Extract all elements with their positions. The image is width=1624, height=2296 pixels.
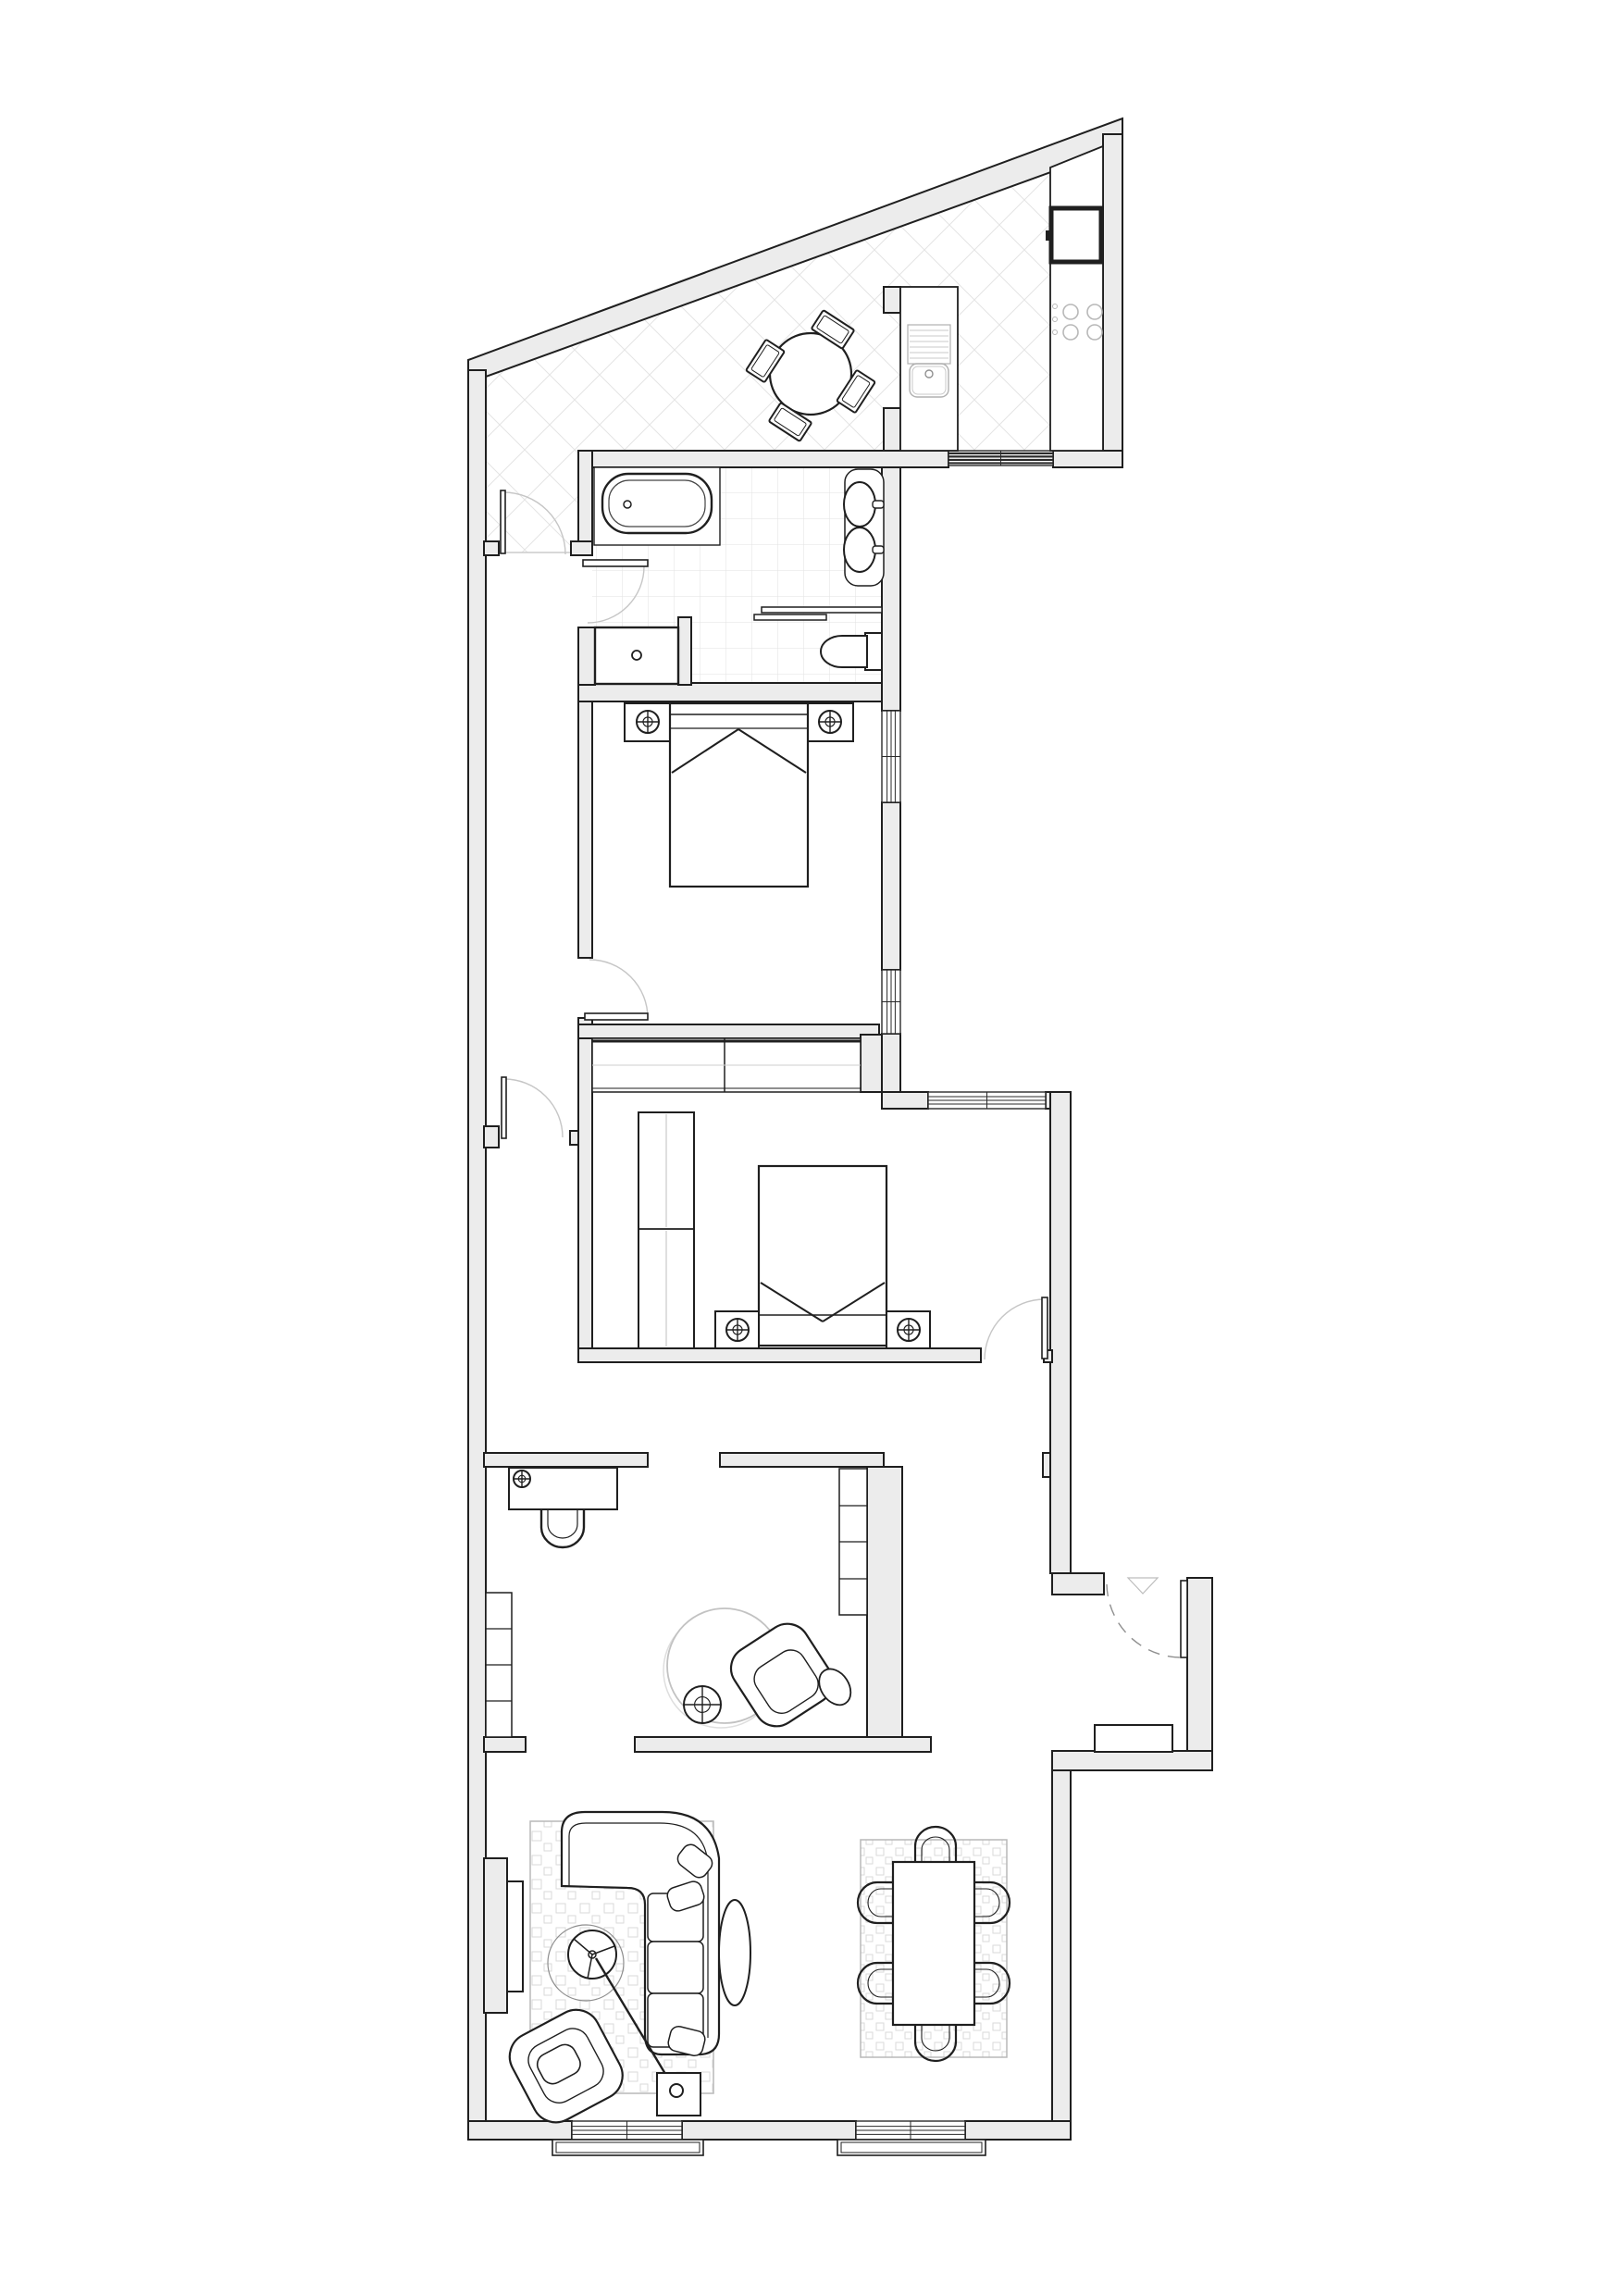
wall-kitchen-right (1103, 134, 1122, 467)
wall-east-2 (882, 802, 900, 970)
vanity-sink-1 (844, 482, 875, 527)
entry-direction-marker (1128, 1578, 1158, 1594)
wall-bath-west (578, 451, 592, 541)
floor-plan (0, 0, 1624, 2296)
study-floor-lamp (684, 1686, 721, 1723)
wall-bed2-north-a (882, 1092, 928, 1109)
wall-study-north-a (484, 1453, 648, 1467)
bed1 (670, 703, 808, 887)
wall-hall-pier (1043, 1453, 1050, 1477)
wall-bath-stub (678, 617, 691, 685)
towel-rail-2 (754, 614, 826, 620)
wall-washer-side (578, 627, 595, 685)
wall-entry-east (1187, 1578, 1212, 1770)
wall-bottom-a (468, 2121, 572, 2140)
tv-panel (507, 1881, 523, 1992)
arc-lamp-bulb (670, 2084, 683, 2097)
door-corridor (502, 1077, 563, 1138)
wall-bed1-south (578, 1024, 879, 1038)
wall-kitchen-bottom-b (1053, 451, 1122, 467)
kitchen-counter (1050, 146, 1103, 451)
wall-vestibule-south (1052, 1751, 1212, 1770)
kitchen-island (900, 287, 958, 451)
window-bed1-lower (882, 970, 900, 1034)
wall-bed2-south (578, 1348, 981, 1362)
wall-east-lower (1052, 1770, 1071, 2140)
wall-kitchen-door-pier (484, 541, 499, 555)
kitchen-fridge (1051, 208, 1101, 262)
door-bed2 (985, 1297, 1048, 1359)
wall-study-east (867, 1467, 902, 1737)
sill-living (552, 2140, 703, 2155)
wall-bath-south (578, 683, 900, 701)
wall-bed1-west (578, 701, 592, 958)
wall-bed2-west (578, 1038, 592, 1362)
wall-east-3 (882, 1034, 900, 1092)
wall-east-1 (882, 467, 900, 711)
wall-bath-sw-pier (571, 541, 592, 555)
vent-kitchen (948, 451, 1053, 465)
wall-bottom-c (965, 2121, 1071, 2140)
wall-study-south-b (635, 1737, 931, 1752)
floor-plan-page (0, 0, 1624, 2296)
vanity-tap-2 (873, 546, 884, 553)
window-living (572, 2121, 682, 2140)
toilet-bowl (821, 636, 867, 667)
wall-corridor-pier-a (484, 1126, 499, 1148)
entry-radiator (1095, 1725, 1172, 1752)
dining-table (893, 1862, 974, 2025)
wall-kitchen-bottom-a (578, 451, 948, 467)
sill-dining (837, 2140, 986, 2155)
sofa-cushion-2 (648, 1942, 703, 1993)
door-bed1 (585, 960, 648, 1020)
study-chair-inner (548, 1509, 577, 1538)
door-entry (1107, 1581, 1187, 1657)
wall-east-mid (1050, 1092, 1071, 1573)
washer (595, 627, 678, 684)
floor-plan-drawing (468, 118, 1212, 2155)
window-dining (856, 2121, 965, 2140)
towel-rail-1 (762, 607, 882, 613)
wall-study-north-b (720, 1453, 884, 1467)
wall-bottom-b (682, 2121, 856, 2140)
sofa-armrest (719, 1900, 750, 2005)
wall-corridor-pier-b (570, 1131, 578, 1145)
window-bed2-north (928, 1092, 1046, 1109)
island-wall-stub-a (884, 287, 900, 313)
bed2-lamp-left (726, 1319, 749, 1341)
bed1-lamp-left (637, 711, 659, 733)
wall-study-south-a (484, 1737, 526, 1752)
bed1-lamp-right (819, 711, 841, 733)
kitchen-fridge-hinge (1046, 230, 1051, 241)
wall-closet-stub (861, 1035, 882, 1092)
bed2-lamp-right (898, 1319, 920, 1341)
bed2 (759, 1166, 886, 1346)
island-wall-stub-b (884, 408, 900, 451)
study-desk-lamp (514, 1471, 530, 1487)
vanity-tap-1 (873, 501, 884, 508)
window-bed1-upper (882, 711, 900, 802)
wall-entry-top (1052, 1573, 1104, 1595)
wall-living-bump (484, 1858, 507, 2013)
vanity-sink-2 (844, 527, 875, 572)
